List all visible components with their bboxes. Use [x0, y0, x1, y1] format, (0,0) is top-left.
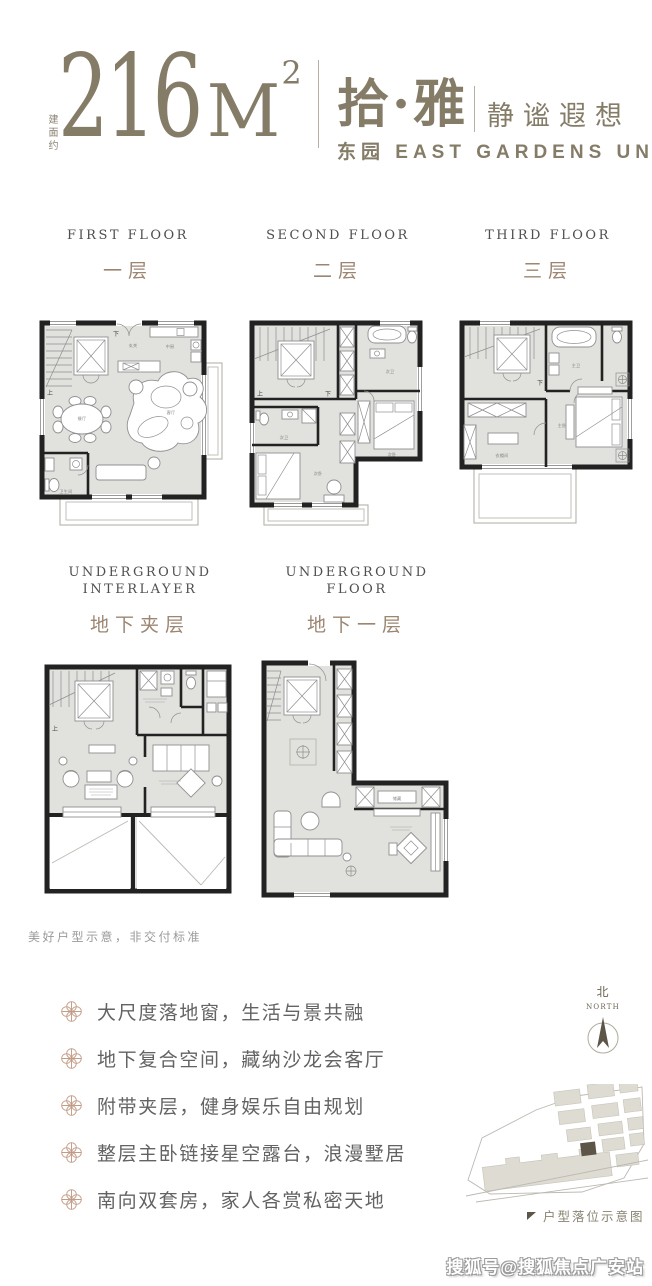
area-unit: M [207, 69, 279, 153]
unit-name: 拾·雅 [337, 62, 468, 137]
second-floor-plan-svg: 上 下 次卫 次卧 [240, 303, 436, 531]
second-floor-plan: 上 下 次卫 次卧 [240, 303, 436, 531]
underground-floor-label-en: UNDERGROUNDFLOOR [250, 565, 464, 599]
svg-text:上: 上 [52, 725, 58, 733]
svg-text:玄关: 玄关 [129, 342, 138, 349]
area-superscript: 2 [281, 54, 301, 92]
feature-item: 南向双套房，家人各赏私密天地 [60, 1188, 406, 1210]
watermark: 搜狐号@搜狐焦点广安站 [446, 1253, 644, 1278]
svg-text:衣帽间: 衣帽间 [495, 452, 508, 459]
svg-text:次卫: 次卫 [280, 434, 289, 441]
subtitle: 东园 EAST GARDENS UNIT4 [337, 137, 652, 164]
svg-text:北: 北 [596, 985, 609, 999]
third-floor-label-cn: 三层 [450, 256, 646, 283]
caption-marker-icon [527, 1212, 536, 1220]
underground-interlayer-plan-svg: 上 [33, 651, 243, 901]
second-floor-label-cn: 二层 [240, 256, 436, 283]
area-prefix: 建面约 [44, 114, 59, 153]
north-compass: 北 NORTH [580, 984, 626, 1067]
second-floor-section: SECOND FLOOR 二层 上 下 [240, 228, 436, 531]
page: 建面约 216M2 拾·雅 静谧遐想 东园 EAST GARDENS UNIT4… [0, 0, 652, 1286]
svg-text:上: 上 [257, 390, 263, 398]
svg-text:主卫: 主卫 [572, 362, 581, 368]
feature-text: 整层主卧链接星空露台，浪漫墅居 [97, 1139, 406, 1166]
svg-text:客厅: 客厅 [167, 409, 176, 416]
underground-floor-section: UNDERGROUNDFLOOR 地下一层 [250, 565, 464, 901]
third-floor-label-en: THIRD FLOOR [450, 228, 646, 245]
first-floor-label-cn: 一层 [30, 256, 226, 283]
svg-text:次卧: 次卧 [388, 451, 397, 458]
underground-floor-plan: 储藏 [250, 651, 464, 901]
third-floor-section: THIRD FLOOR 三层 下 [450, 228, 646, 531]
feature-text: 大尺度落地窗，生活与景共融 [97, 998, 365, 1025]
header-divider-1 [318, 60, 319, 148]
feature-item: 地下复合空间，藏纳沙龙会客厅 [60, 1047, 406, 1069]
feature-item: 整层主卧链接星空露台，浪漫墅居 [60, 1141, 406, 1163]
third-floor-plan-svg: 下 主卫 主卧 [450, 303, 646, 531]
svg-text:储藏: 储藏 [393, 795, 402, 802]
underground-floor-plan-svg: 储藏 [250, 651, 460, 901]
first-floor-plan: 下 上 中厨 玄关 餐厅 [30, 303, 226, 531]
svg-text:卫生间: 卫生间 [59, 488, 72, 495]
area-number: 216 [58, 40, 200, 154]
svg-text:次卫: 次卫 [386, 368, 395, 375]
underground-interlayer-section: UNDERGROUNDINTERLAYER 地下夹层 [33, 565, 247, 901]
disclaimer-note: 美好户型示意，非交付标准 [28, 928, 202, 945]
rosette-icon [60, 1000, 83, 1023]
underground-interlayer-label-cn: 地下夹层 [33, 610, 247, 637]
rosette-icon [60, 1047, 83, 1070]
svg-text:NORTH: NORTH [586, 1003, 620, 1011]
rosette-icon [60, 1141, 83, 1164]
rosette-icon [60, 1094, 83, 1117]
third-floor-plan: 下 主卫 主卧 [450, 303, 646, 531]
feature-item: 大尺度落地窗，生活与景共融 [60, 1000, 406, 1022]
underground-floor-label-cn: 地下一层 [250, 610, 464, 637]
feature-list: 大尺度落地窗，生活与景共融 地下复合空间，藏纳沙龙会客厅 附带夹层，健身娱乐自由… [60, 1000, 406, 1235]
tagline: 静谧遐想 [487, 94, 631, 133]
svg-text:餐厅: 餐厅 [78, 415, 87, 422]
svg-text:中厨: 中厨 [166, 343, 175, 350]
svg-text:上: 上 [47, 389, 53, 397]
svg-text:下: 下 [325, 391, 331, 398]
site-plan-svg [464, 1084, 652, 1204]
feature-item: 附带夹层，健身娱乐自由规划 [60, 1094, 406, 1116]
underground-interlayer-plan: 上 [33, 651, 247, 901]
first-floor-section: FIRST FLOOR 一层 [30, 228, 226, 531]
feature-text: 南向双套房，家人各赏私密天地 [97, 1186, 385, 1213]
feature-text: 附带夹层，健身娱乐自由规划 [97, 1092, 365, 1119]
underground-interlayer-label-en: UNDERGROUNDINTERLAYER [33, 565, 247, 599]
feature-text: 地下复合空间，藏纳沙龙会客厅 [97, 1045, 385, 1072]
svg-text:下: 下 [113, 331, 119, 338]
caption-text: 户型落位示意图 [543, 1206, 645, 1225]
first-floor-label-en: FIRST FLOOR [30, 228, 226, 245]
svg-text:次卧: 次卧 [314, 470, 323, 477]
first-floor-plan-svg: 下 上 中厨 玄关 餐厅 [30, 303, 226, 531]
site-plan [464, 1084, 652, 1209]
svg-text:下: 下 [537, 380, 543, 387]
rosette-icon [60, 1188, 83, 1211]
second-floor-label-en: SECOND FLOOR [240, 228, 436, 245]
svg-text:主卧: 主卧 [558, 422, 567, 429]
site-plan-caption: 户型落位示意图 [527, 1206, 645, 1225]
header-divider-2 [474, 86, 475, 132]
compass-icon: 北 NORTH [580, 984, 626, 1062]
area-figure: 216M2 [58, 40, 302, 154]
